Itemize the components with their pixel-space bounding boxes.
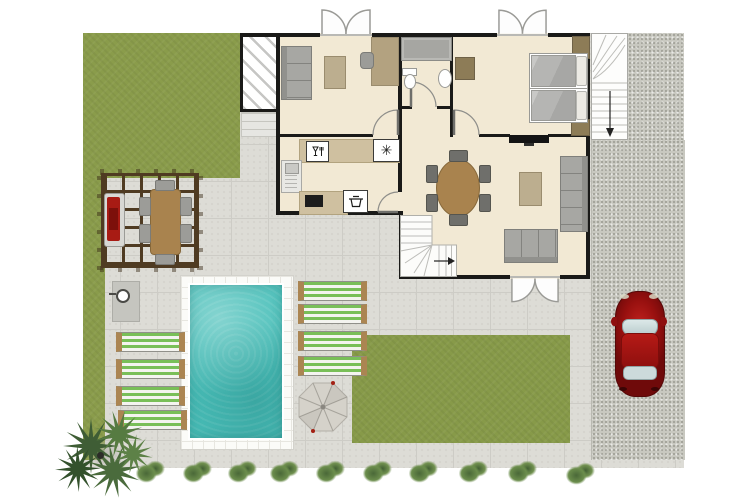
wall-top-a [240, 33, 320, 37]
car-headlight-left [620, 294, 629, 299]
sun-lounger [298, 356, 367, 376]
dining-chair-left-1 [426, 165, 438, 183]
parked-car [615, 291, 663, 395]
barbecue-grill [109, 208, 118, 230]
bed-blanket [531, 55, 576, 87]
internal-staircase [400, 215, 457, 277]
parasol-rib-tip [331, 381, 335, 385]
covered-porch [243, 37, 276, 109]
dining-chair-top [449, 150, 468, 162]
bed-pillow [576, 91, 587, 120]
french-doors-room1 [320, 7, 372, 34]
car-headlight-right [649, 294, 658, 299]
bush [504, 458, 540, 486]
dining-chair-right-1 [479, 165, 491, 183]
bush [359, 458, 395, 486]
washing-machine-icon [348, 195, 364, 208]
bush [224, 458, 260, 486]
sink-basin [285, 163, 299, 174]
pergola-chair-right-1 [180, 197, 192, 216]
gravel-driveway-top [628, 33, 684, 140]
door-sill-bedroom [497, 34, 548, 36]
shower-arm [109, 293, 116, 295]
barbecue [104, 193, 125, 247]
bedroom-door [452, 108, 480, 136]
washing-machine [343, 190, 368, 213]
bush [179, 458, 215, 486]
desk-chair [360, 52, 374, 69]
terrace-double-doors [510, 278, 560, 305]
twin-bed-1 [529, 53, 588, 89]
wall-bedroom-bottom-a [479, 134, 510, 137]
swimming-pool [188, 283, 284, 440]
dishwasher [306, 141, 329, 162]
palm-trunk [97, 452, 104, 459]
freezer-icon: ✳ [381, 144, 393, 158]
dining-chair-right-2 [479, 194, 491, 212]
hob [305, 195, 323, 207]
lawn-bottom [352, 335, 570, 443]
living-coffee-table [519, 172, 542, 206]
living-sofa-bottom [504, 229, 558, 263]
dishwasher-icon [311, 145, 325, 158]
study-sofa [281, 46, 312, 100]
room1-door [372, 108, 400, 136]
bush [312, 458, 348, 486]
wall-kitchen-top [280, 134, 373, 137]
pergola-chair-right-2 [180, 224, 192, 243]
sun-lounger [298, 331, 367, 351]
dining-table [436, 159, 480, 217]
floor-plan: ✳ [0, 0, 750, 500]
sun-lounger [116, 386, 185, 406]
garden-top-left [83, 33, 240, 178]
sun-lounger [298, 304, 367, 324]
sun-lounger [116, 359, 185, 379]
car-roof [621, 333, 659, 369]
twin-bed-2 [529, 88, 588, 123]
dining-chair-left-2 [426, 194, 438, 212]
pergola-chair-bottom [155, 254, 175, 265]
car-mirror-left [611, 317, 617, 326]
wall-bath-bottom-b [437, 106, 452, 109]
wall-house-left [276, 33, 280, 215]
pergola-table [150, 189, 181, 255]
car-taillight-right [651, 387, 659, 391]
sink-drainer [285, 175, 297, 188]
washbasin [438, 69, 452, 88]
bush [405, 458, 441, 486]
toilet-bowl [404, 74, 416, 89]
bush [455, 458, 491, 486]
door-sill-room1 [320, 34, 372, 36]
parasol-rib-tip [311, 429, 315, 433]
parasol [296, 380, 350, 434]
wall-tv-stand [524, 143, 534, 146]
bed-pillow [576, 56, 587, 86]
french-doors-bedroom [497, 7, 548, 34]
shower-head-icon [116, 289, 130, 303]
sun-lounger [116, 332, 185, 352]
sun-lounger [298, 281, 367, 301]
kitchen-door [376, 190, 400, 214]
porch-steps [241, 112, 280, 137]
living-sofa-right [560, 156, 588, 232]
pergola-chair-left-1 [139, 197, 151, 216]
bush [266, 458, 302, 486]
bush [562, 460, 598, 488]
palm-cluster [55, 410, 160, 500]
exterior-staircase-drawing [591, 33, 628, 140]
study-coffee-table [324, 56, 346, 89]
wall-tv [509, 135, 549, 143]
exterior-staircase [591, 33, 628, 140]
kitchen-sink-unit [281, 160, 302, 193]
wall-porch-bottom [240, 109, 279, 112]
car-rear-window [623, 366, 657, 380]
bush [132, 458, 168, 486]
wall-porch-left [240, 33, 243, 112]
bed-blanket [531, 90, 576, 121]
pergola-chair-top [155, 180, 175, 191]
car-taillight-left [619, 387, 627, 391]
shower-tray [401, 37, 452, 61]
pergola-chair-left-2 [139, 224, 151, 243]
wardrobe-left [455, 57, 475, 80]
car-mirror-right [661, 317, 667, 326]
freezer: ✳ [373, 139, 400, 162]
desk [371, 37, 399, 86]
